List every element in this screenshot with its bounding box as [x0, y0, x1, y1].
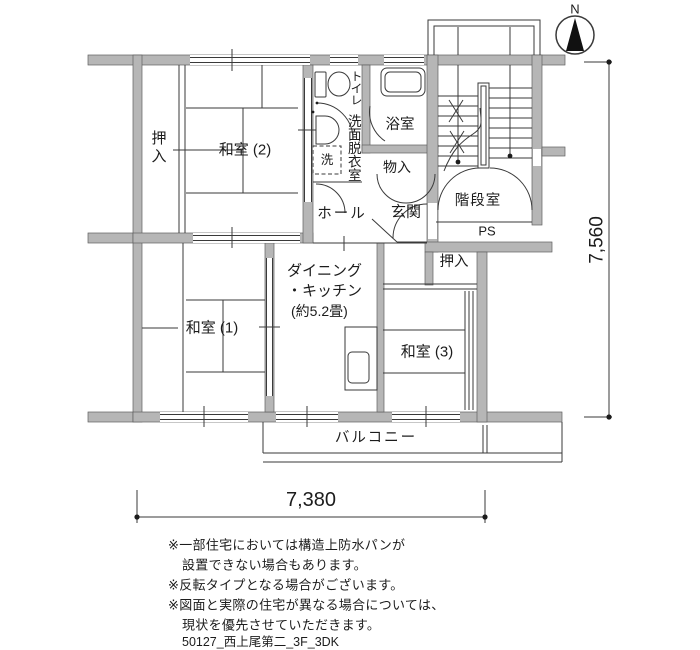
note-line-2: 設置できない場合もあります。	[182, 559, 367, 572]
room-label-dk-line1: ダイニング	[287, 264, 362, 279]
note-line-4: ※図面と実際の住宅が異なる場合については、	[168, 599, 445, 612]
room-label-washitsu1: 和室 (1)	[186, 321, 239, 336]
stair-tower-outline	[428, 20, 540, 55]
room-label-dk-line3: (約5.2畳)	[291, 304, 348, 318]
room-label-bathroom: 浴室	[386, 118, 415, 133]
stairs	[438, 27, 532, 171]
toilet-icon	[315, 72, 350, 104]
plan-code: 50127_西上尾第二_3F_3DK	[182, 636, 339, 649]
room-label-senmen-datsuishitsu: 洗面脱衣室	[346, 114, 360, 182]
room-label-oshiire-right: 押入	[440, 255, 469, 270]
note-line-5: 現状を優先させていただきます。	[182, 619, 380, 632]
kitchen-sink-icon	[345, 327, 377, 390]
room-label-monoire: 物入	[383, 160, 411, 174]
washing-machine-label: 洗	[321, 154, 334, 167]
room-label-toilet: トイレ	[350, 70, 362, 106]
room-label-genkan: 玄関	[391, 205, 421, 220]
room-label-oshiire-left: 押入	[151, 130, 166, 166]
note-line-1: ※一部住宅においては構造上防水パンが	[168, 539, 405, 552]
floor-plan-page: N 押入 和室 (2) トイレ 洗面脱衣室 洗 浴室 物入 玄関 ホール 階段室…	[0, 0, 700, 650]
bathtub-icon	[381, 68, 425, 96]
north-arrow-icon	[556, 16, 594, 54]
walls	[88, 55, 565, 422]
dimension-height-label: 7,560	[588, 216, 607, 264]
dimension-width-label: 7,380	[286, 490, 336, 510]
room-label-pipe-space: PS	[478, 225, 495, 238]
room-label-balcony: バルコニー	[335, 431, 417, 446]
washbasin-icon	[312, 111, 339, 144]
room-label-stairwell: 階段室	[455, 194, 502, 209]
north-label: N	[570, 3, 579, 16]
room-label-washitsu3: 和室 (3)	[401, 345, 454, 360]
note-line-3: ※反転タイプとなる場合がございます。	[168, 579, 404, 592]
room-label-washitsu2: 和室 (2)	[219, 143, 272, 158]
room-label-hall: ホール	[317, 207, 367, 222]
room-label-dk-line2: ・キッチン	[287, 284, 362, 299]
